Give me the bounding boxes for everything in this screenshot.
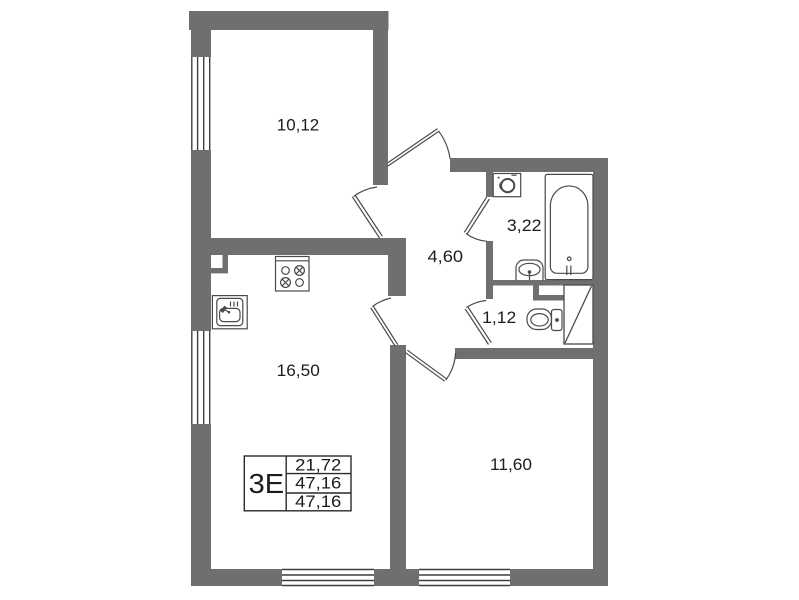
svg-text:1,12: 1,12	[482, 308, 516, 327]
svg-text:21,72: 21,72	[295, 455, 341, 474]
svg-text:47,16: 47,16	[295, 492, 341, 511]
svg-text:11,60: 11,60	[490, 455, 532, 474]
svg-text:4,60: 4,60	[428, 247, 464, 266]
svg-text:3,22: 3,22	[507, 216, 542, 235]
svg-text:10,12: 10,12	[277, 115, 319, 134]
svg-text:47,16: 47,16	[295, 474, 341, 493]
svg-text:3Е: 3Е	[249, 468, 285, 499]
svg-text:16,50: 16,50	[277, 361, 320, 380]
